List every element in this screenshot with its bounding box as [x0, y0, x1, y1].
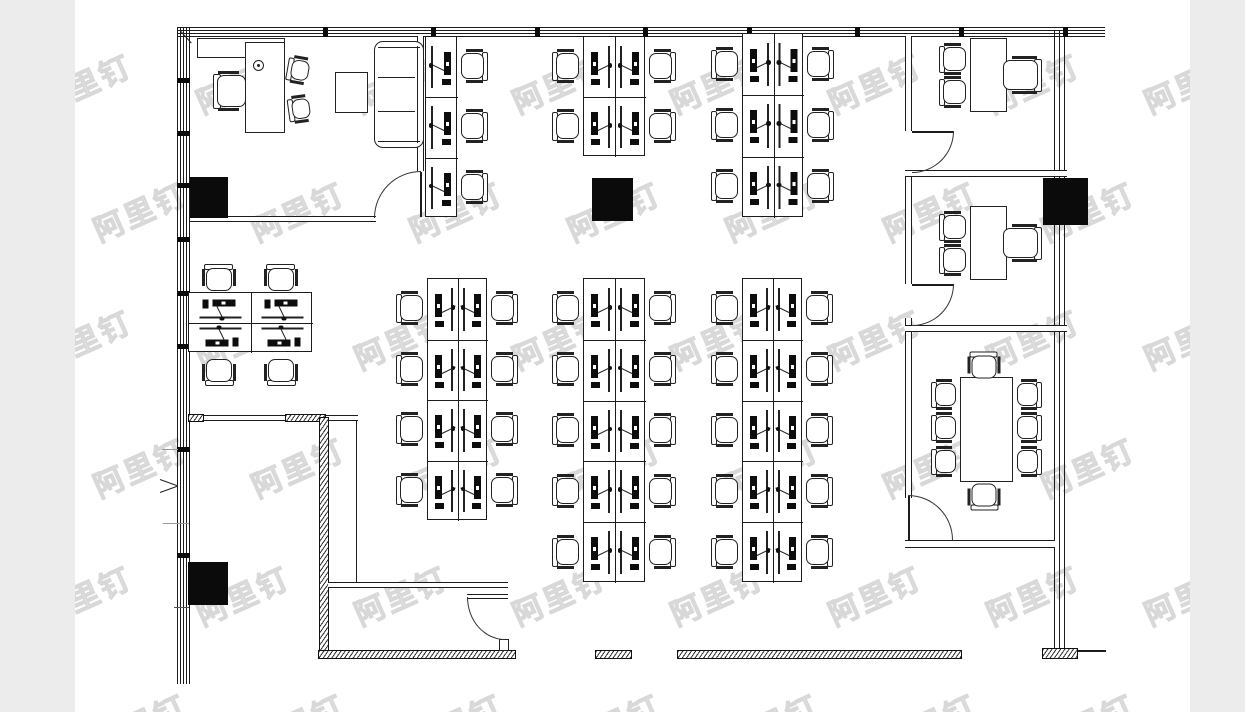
task-chair: [711, 108, 739, 142]
monitor-icon: [435, 415, 442, 438]
desk-equipment: [428, 279, 458, 340]
phone-icon: [787, 503, 796, 509]
task-chair: [552, 291, 580, 325]
phone-icon: [750, 503, 759, 509]
chair-seat: [217, 75, 246, 107]
office-divider-wall: [905, 170, 1067, 177]
storage-door-arc: [467, 597, 505, 640]
monitor-icon: [632, 355, 639, 378]
desk-equipment: [773, 461, 803, 522]
workstation-desk: [584, 461, 615, 522]
task-chair: [396, 352, 424, 386]
desk-equipment: [615, 401, 646, 462]
workstation-desk: [458, 279, 488, 340]
privacy-screen: [779, 104, 781, 147]
window-break-mark: [160, 486, 177, 493]
door-stop: [499, 639, 509, 651]
desk-equipment: [252, 323, 312, 354]
sofa-cushion-divider: [378, 77, 415, 78]
phone-icon: [788, 137, 797, 143]
phone-icon: [591, 564, 600, 570]
chair-seat: [806, 417, 829, 443]
task-chair: [552, 352, 580, 386]
desk-equipment: [743, 461, 773, 522]
sofa-cushion-divider: [378, 111, 415, 112]
meeting-room-door-arc: [908, 495, 953, 540]
desk-equipment: [615, 461, 646, 522]
privacy-screen: [766, 470, 768, 513]
privacy-screen: [463, 288, 465, 331]
privacy-screen: [463, 349, 465, 392]
monitor-icon: [591, 476, 598, 499]
meeting-chair: [931, 412, 957, 443]
monitor-icon: [591, 112, 598, 135]
meeting-chair: [931, 446, 957, 477]
task-chair: [711, 47, 739, 81]
phone-icon: [202, 300, 208, 309]
task-chair: [460, 109, 488, 143]
chair-seat: [649, 417, 672, 443]
privacy-screen: [767, 43, 769, 86]
task-chair: [805, 535, 833, 569]
desk-equipment: [773, 279, 803, 340]
workstation-cluster: [583, 278, 645, 582]
privacy-screen: [431, 167, 433, 209]
chair-seat: [807, 112, 830, 138]
workstation-desk: [428, 279, 458, 340]
workstation-desk: [584, 97, 615, 157]
task-chair: [264, 358, 298, 386]
task-chair: [460, 170, 488, 204]
privacy-screen: [451, 349, 453, 392]
workstation-desk: [615, 97, 646, 157]
privacy-screen: [778, 470, 780, 513]
bottom-hatch-wall: [677, 650, 962, 659]
privacy-screen: [608, 410, 610, 453]
chair-seat: [715, 539, 738, 565]
workstation-desk: [189, 323, 251, 353]
desk-equipment: [615, 522, 646, 583]
desk-equipment: [458, 340, 488, 401]
chair-seat: [556, 478, 579, 504]
monitor-icon: [591, 52, 598, 75]
chair-seat: [807, 51, 830, 77]
workstation-desk: [428, 400, 458, 461]
meeting-room-top-wall: [905, 325, 1067, 332]
workstation-desk: [251, 293, 313, 323]
privacy-screen: [778, 410, 780, 453]
privacy-screen: [766, 410, 768, 453]
phone-icon: [472, 442, 481, 448]
window-mullion-tick: [535, 27, 540, 37]
workstation-desk: [743, 461, 773, 522]
window-mullion-tick: [855, 27, 860, 37]
privacy-screen: [620, 46, 622, 88]
monitor-icon: [789, 294, 796, 317]
privacy-screen: [778, 288, 780, 331]
privacy-screen: [451, 470, 453, 513]
privacy-screen: [620, 531, 622, 574]
chair-seat: [806, 356, 829, 382]
monitor-icon: [267, 340, 290, 347]
monitor-icon: [632, 476, 639, 499]
privacy-screen: [608, 46, 610, 88]
chair-seat: [1003, 60, 1038, 90]
bottom-hatch-stub: [595, 650, 632, 659]
desk-equipment: [743, 340, 773, 401]
chair-seat: [400, 295, 423, 321]
task-chair: [711, 535, 739, 569]
monitor-icon: [632, 416, 639, 439]
phone-icon: [630, 382, 639, 388]
task-chair: [648, 291, 676, 325]
monitor-icon: [205, 340, 228, 347]
privacy-screen: [608, 349, 610, 392]
storage-left-hatch-wall: [319, 417, 329, 657]
window-mullion-tick: [1063, 27, 1068, 37]
desk-equipment: [615, 340, 646, 401]
workstation-desk: [773, 522, 803, 583]
window-mullion-tick: [177, 447, 190, 452]
chair-seat: [206, 268, 232, 291]
phone-icon: [442, 200, 451, 206]
workstation-desk: [458, 340, 488, 401]
chair-seat: [461, 53, 484, 79]
grid-tick: [174, 607, 189, 608]
workstation-desk: [743, 157, 774, 218]
phone-icon: [435, 503, 444, 509]
workstation-desk: [743, 95, 774, 156]
structural-column: [1043, 178, 1088, 225]
phone-icon: [472, 321, 481, 327]
chair-seat: [972, 356, 997, 379]
window-mullion-tick: [177, 237, 190, 242]
chair-seat: [1017, 383, 1038, 406]
workstation-desk: [584, 401, 615, 462]
privacy-screen: [778, 531, 780, 574]
workstation-desk: [774, 34, 805, 95]
desk-equipment: [774, 95, 805, 156]
desk-equipment: [615, 279, 646, 340]
chair-seat: [649, 478, 672, 504]
privacy-screen: [767, 166, 769, 209]
workstation-desk: [743, 340, 773, 401]
phone-icon: [750, 321, 759, 327]
chair-seat: [715, 51, 738, 77]
monitor-icon: [444, 173, 451, 196]
task-chair: [264, 264, 298, 292]
desk-equipment: [773, 522, 803, 583]
meeting-chair: [1016, 379, 1042, 410]
phone-icon: [435, 321, 444, 327]
privacy-screen: [620, 349, 622, 392]
chair-seat: [806, 539, 829, 565]
monitor-icon: [632, 537, 639, 560]
privacy-screen: [608, 288, 610, 331]
task-chair: [648, 49, 676, 83]
task-chair: [460, 49, 488, 83]
executive-chair: [213, 71, 247, 111]
desk-equipment: [773, 340, 803, 401]
privacy-screen: [451, 288, 453, 331]
chair-seat: [556, 417, 579, 443]
phone-icon: [591, 503, 600, 509]
meeting-chair: [1016, 412, 1042, 443]
chair-seat: [289, 59, 310, 82]
privacy-screen: [620, 106, 622, 148]
workstation-desk: [773, 461, 803, 522]
monitor-icon: [790, 110, 797, 133]
monitor-icon: [444, 52, 451, 75]
phone-icon: [750, 76, 759, 82]
chair-seat: [715, 417, 738, 443]
monitor-icon: [750, 355, 757, 378]
task-chair: [490, 473, 518, 507]
monitor-icon: [750, 416, 757, 439]
meeting-chair: [968, 483, 1001, 511]
chair-seat: [461, 174, 484, 200]
monitor-icon: [212, 300, 235, 307]
desk-equipment: [584, 37, 615, 97]
meeting-chair: [1016, 446, 1042, 477]
workstation-desk: [615, 401, 646, 462]
hatch-wall-stub: [188, 414, 204, 422]
workstation-desk: [428, 340, 458, 401]
guest-chair: [939, 76, 967, 108]
desk-equipment: [584, 97, 615, 157]
task-chair: [552, 474, 580, 508]
privacy-screen: [261, 328, 303, 330]
chair-seat: [972, 484, 997, 507]
task-chair: [202, 264, 236, 292]
task-chair: [552, 109, 580, 143]
privacy-screen: [608, 106, 610, 148]
task-chair: [396, 412, 424, 446]
monitor-icon: [444, 112, 451, 135]
phone-icon: [591, 443, 600, 449]
workstation-cluster: [427, 278, 487, 520]
monitor-icon: [790, 49, 797, 72]
workstation-cluster: [188, 292, 312, 352]
desk-equipment: [743, 401, 773, 462]
task-chair: [490, 412, 518, 446]
phone-icon: [232, 338, 238, 347]
grid-tick: [163, 523, 189, 524]
task-chair: [648, 352, 676, 386]
workstation-cluster: [425, 36, 457, 217]
phone-icon: [591, 321, 600, 327]
workstation-cluster: [583, 36, 645, 156]
task-chair: [202, 358, 236, 386]
monitor-icon: [274, 300, 297, 307]
monitor-icon: [435, 355, 442, 378]
phone-icon: [630, 443, 639, 449]
chair-seat: [649, 53, 672, 79]
task-chair: [552, 413, 580, 447]
workstation-desk: [428, 461, 458, 522]
task-chair: [711, 291, 739, 325]
task-chair: [806, 47, 834, 81]
task-chair: [711, 169, 739, 203]
office2-chair: [1002, 224, 1042, 262]
chair-seat: [400, 416, 423, 442]
desk-equipment: [584, 279, 615, 340]
workstation-desk: [584, 37, 615, 97]
privacy-screen: [431, 106, 433, 148]
workstation-desk: [743, 401, 773, 462]
monitor-icon: [789, 537, 796, 560]
privacy-screen: [261, 317, 303, 319]
task-chair: [396, 291, 424, 325]
workstation-desk: [584, 340, 615, 401]
workstation-desk: [615, 37, 646, 97]
storage-bottom-hatch-wall: [318, 650, 516, 659]
storage-top-wall: [188, 415, 358, 421]
meeting-room-bottom-wall: [905, 540, 1055, 548]
guest-chair: [285, 54, 313, 86]
desk-equipment: [458, 461, 488, 522]
monitor-icon: [474, 476, 481, 499]
workstation-desk: [458, 400, 488, 461]
task-chair: [805, 352, 833, 386]
chair-seat: [935, 383, 956, 406]
desk-equipment: [252, 293, 312, 324]
chair-seat: [1003, 228, 1038, 258]
monitor-icon: [750, 110, 757, 133]
task-chair: [648, 474, 676, 508]
window-mullion-tick: [177, 183, 190, 188]
privacy-screen: [620, 470, 622, 513]
phone-icon: [750, 199, 759, 205]
desk-equipment: [774, 34, 805, 95]
privacy-screen: [766, 288, 768, 331]
phone-icon: [787, 321, 796, 327]
workstation-cluster: [742, 33, 803, 217]
chair-seat: [943, 215, 966, 239]
phone-icon: [788, 199, 797, 205]
monitor-icon: [435, 476, 442, 499]
desk-equipment: [426, 37, 458, 97]
guest-chair: [939, 43, 967, 75]
office2-left-wall: [905, 173, 912, 284]
desk-equipment: [426, 97, 458, 157]
monitor-icon: [750, 537, 757, 560]
workstation-desk: [743, 34, 774, 95]
chair-seat: [206, 359, 232, 382]
grid-tick: [162, 449, 178, 450]
monitor-icon: [591, 294, 598, 317]
privacy-screen: [778, 349, 780, 392]
privacy-screen: [766, 531, 768, 574]
coffee-table: [335, 72, 368, 113]
monitor-icon: [632, 112, 639, 135]
floorplan-drawing: [0, 0, 1245, 712]
privacy-screen: [463, 409, 465, 452]
guest-chair: [286, 94, 313, 125]
conference-table: [960, 377, 1013, 482]
desk-equipment: [426, 158, 458, 218]
privacy-screen: [766, 349, 768, 392]
task-chair: [396, 473, 424, 507]
chair-seat: [1017, 450, 1038, 473]
phone-icon: [750, 564, 759, 570]
phone-icon: [472, 503, 481, 509]
office1-left-wall: [905, 36, 912, 131]
phone-icon: [435, 382, 444, 388]
phone-icon: [750, 443, 759, 449]
workstation-desk: [584, 279, 615, 340]
phone-icon: [750, 137, 759, 143]
chair-seat: [556, 356, 579, 382]
chair-seat: [400, 477, 423, 503]
task-chair: [806, 108, 834, 142]
chair-seat: [715, 356, 738, 382]
task-chair: [711, 474, 739, 508]
chair-seat: [649, 295, 672, 321]
phone-icon: [442, 139, 451, 145]
window-mullion-tick: [959, 27, 964, 37]
monitor-icon: [474, 415, 481, 438]
bottom-right-line: [1078, 650, 1106, 652]
chair-seat: [806, 295, 829, 321]
desk-equipment: [584, 340, 615, 401]
window-mullion-tick: [177, 78, 190, 83]
desk-equipment: [615, 37, 646, 97]
task-chair: [552, 535, 580, 569]
structural-column: [188, 562, 228, 605]
chair-seat: [556, 539, 579, 565]
privacy-screen: [608, 531, 610, 574]
office1-door-arc: [912, 131, 954, 173]
workstation-desk: [426, 158, 458, 218]
monitor-icon: [632, 294, 639, 317]
privacy-screen: [431, 46, 433, 88]
chair-seat: [491, 356, 514, 382]
storage-counter-wall: [328, 582, 508, 588]
privacy-screen: [199, 317, 241, 319]
chair-seat: [461, 113, 484, 139]
sofa: [374, 41, 424, 148]
chair-seat: [491, 295, 514, 321]
desk-equipment: [743, 279, 773, 340]
phone-icon: [630, 564, 639, 570]
phone-icon: [442, 79, 451, 85]
workstation-desk: [426, 97, 458, 157]
desk-equipment: [774, 157, 805, 218]
workstation-desk: [774, 157, 805, 218]
privacy-screen: [451, 409, 453, 452]
monitor-icon: [474, 294, 481, 317]
structural-column: [190, 177, 228, 218]
phone-icon: [787, 443, 796, 449]
chair-seat: [491, 416, 514, 442]
bottom-right-hatch-block: [1042, 648, 1078, 659]
workstation-desk: [458, 461, 488, 522]
monitor-icon: [435, 294, 442, 317]
monitor-icon: [789, 416, 796, 439]
chair-seat: [943, 80, 966, 104]
workstation-desk: [189, 293, 251, 323]
workstation-desk: [743, 522, 773, 583]
structural-column: [592, 178, 633, 221]
desk-equipment: [584, 522, 615, 583]
chair-seat: [556, 113, 579, 139]
guest-chair: [939, 244, 967, 276]
task-chair: [648, 413, 676, 447]
task-chair: [648, 535, 676, 569]
desk-equipment: [743, 95, 774, 156]
chair-seat: [556, 53, 579, 79]
